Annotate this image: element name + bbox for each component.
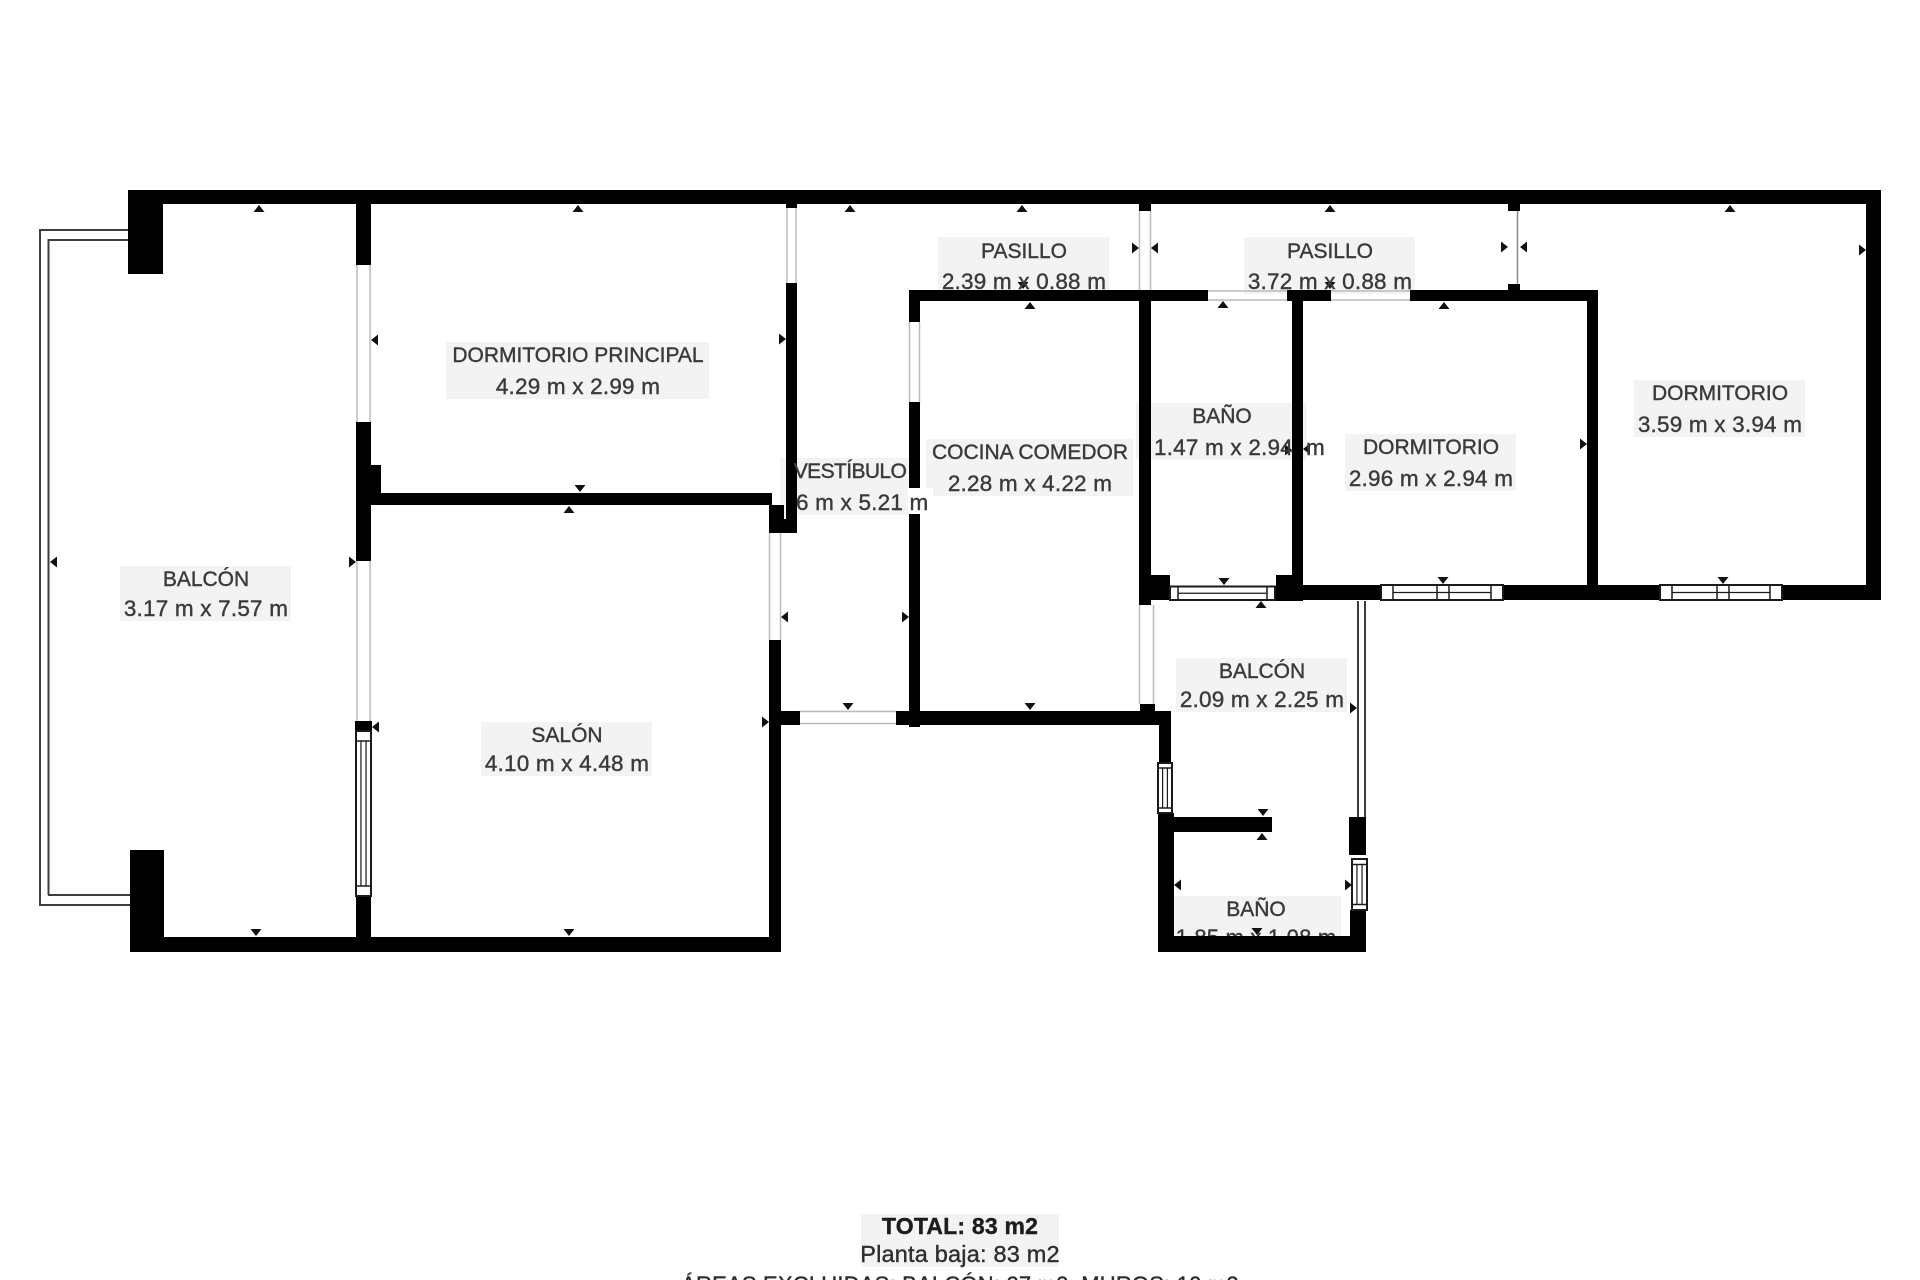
svg-text:2.39 m x 0.88 m: 2.39 m x 0.88 m [942, 269, 1106, 294]
svg-text:3.17 m x 7.57 m: 3.17 m x 7.57 m [124, 596, 288, 621]
svg-text:1.47 m x 2.94: 1.47 m x 2.94 [1154, 435, 1293, 460]
svg-text:COCINA COMEDOR: COCINA COMEDOR [932, 441, 1128, 464]
svg-text:BALCÓN: BALCÓN [163, 568, 249, 591]
svg-text:ÁREAS EXCLUIDAS: BALCÓN: 27 m2: ÁREAS EXCLUIDAS: BALCÓN: 27 m2, MUROS: 1… [681, 1272, 1239, 1280]
svg-text:3.59 m x 3.94 m: 3.59 m x 3.94 m [1638, 412, 1802, 437]
svg-text:2.96 m x 2.94 m: 2.96 m x 2.94 m [1349, 466, 1513, 491]
svg-text:TOTAL: 83 m2: TOTAL: 83 m2 [882, 1213, 1038, 1239]
svg-text:SALÓN: SALÓN [531, 724, 602, 747]
svg-text:2.09 m x 2.25 m: 2.09 m x 2.25 m [1180, 687, 1344, 712]
svg-text:Planta baja: 83 m2: Planta baja: 83 m2 [860, 1241, 1060, 1267]
svg-text:PASILLO: PASILLO [981, 240, 1067, 263]
svg-text:DORMITORIO PRINCIPAL: DORMITORIO PRINCIPAL [452, 344, 703, 367]
svg-text:m: m [1306, 435, 1325, 460]
svg-text:3.72 m x 0.88 m: 3.72 m x 0.88 m [1248, 269, 1412, 294]
svg-text:BAÑO: BAÑO [1226, 897, 1286, 921]
svg-text:DORMITORIO: DORMITORIO [1363, 436, 1499, 459]
svg-text:4.29 m x 2.99 m: 4.29 m x 2.99 m [496, 374, 660, 399]
svg-text:DORMITORIO: DORMITORIO [1652, 382, 1788, 405]
svg-text:6 m x 5.21 m: 6 m x 5.21 m [796, 490, 928, 515]
svg-text:PASILLO: PASILLO [1287, 240, 1373, 263]
svg-text:BALCÓN: BALCÓN [1219, 660, 1305, 683]
svg-text:VESTÍBULO: VESTÍBULO [794, 460, 907, 483]
svg-text:BAÑO: BAÑO [1192, 404, 1252, 428]
svg-text:4.10 m x 4.48 m: 4.10 m x 4.48 m [485, 751, 649, 776]
svg-text:2.28 m x 4.22 m: 2.28 m x 4.22 m [948, 471, 1112, 496]
